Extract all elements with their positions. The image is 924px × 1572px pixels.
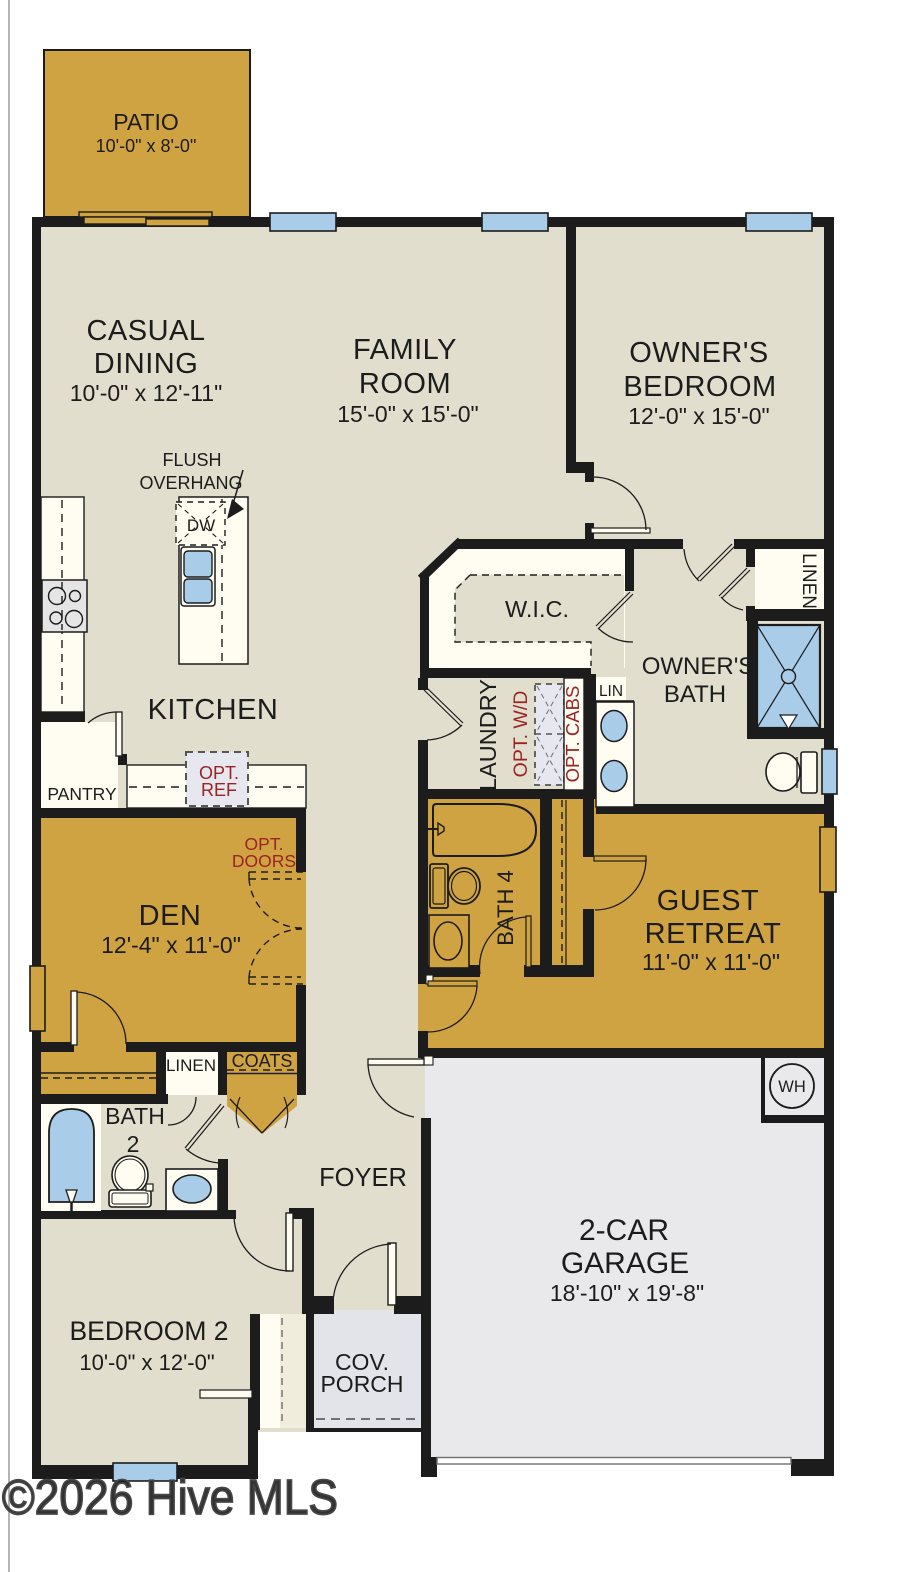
svg-text:FAMILY: FAMILY [353, 334, 457, 366]
svg-text:KITCHEN: KITCHEN [148, 694, 279, 726]
svg-text:10'-0" x 12'-11": 10'-0" x 12'-11" [70, 380, 223, 406]
svg-text:W.I.C.: W.I.C. [505, 596, 569, 622]
svg-text:2-CAR: 2-CAR [579, 1214, 669, 1247]
svg-text:11'-0" x 11'-0": 11'-0" x 11'-0" [642, 949, 780, 975]
svg-text:18'-10" x 19'-8": 18'-10" x 19'-8" [550, 1280, 704, 1306]
svg-text:BEDROOM: BEDROOM [623, 371, 776, 403]
svg-text:PORCH: PORCH [320, 1371, 403, 1397]
svg-text:CASUAL: CASUAL [86, 315, 205, 347]
svg-text:OWNER'S: OWNER'S [642, 653, 755, 680]
svg-text:OWNER'S: OWNER'S [629, 337, 769, 369]
svg-text:BEDROOM 2: BEDROOM 2 [69, 1316, 228, 1346]
svg-text:FOYER: FOYER [319, 1164, 407, 1192]
svg-text:OVERHANG: OVERHANG [139, 473, 242, 493]
svg-text:REF: REF [201, 780, 237, 800]
svg-text:OPT. CABS: OPT. CABS [562, 686, 583, 783]
svg-text:COATS: COATS [232, 1051, 293, 1071]
svg-text:15'-0" x 15'-0": 15'-0" x 15'-0" [337, 401, 478, 427]
svg-text:BATH: BATH [105, 1103, 165, 1129]
svg-text:10'-0" x 12'-0": 10'-0" x 12'-0" [79, 1350, 214, 1375]
svg-text:FLUSH: FLUSH [162, 450, 221, 470]
svg-text:LINEN: LINEN [798, 553, 819, 609]
svg-text:LINEN: LINEN [166, 1056, 216, 1075]
svg-text:12'-4" x 11'-0": 12'-4" x 11'-0" [101, 932, 241, 958]
svg-text:10'-0" x 8'-0": 10'-0" x 8'-0" [96, 136, 197, 156]
svg-text:BATH 4: BATH 4 [493, 870, 518, 945]
svg-text:2: 2 [127, 1131, 140, 1157]
svg-text:ROOM: ROOM [359, 368, 451, 400]
svg-text:LAUNDRY: LAUNDRY [475, 679, 501, 791]
svg-text:©2026 Hive MLS: ©2026 Hive MLS [2, 1471, 338, 1525]
svg-text:WH: WH [778, 1078, 806, 1096]
svg-text:DOORS: DOORS [232, 851, 296, 871]
svg-text:BATH: BATH [664, 681, 726, 708]
svg-text:PATIO: PATIO [113, 109, 179, 135]
svg-text:GARAGE: GARAGE [561, 1247, 689, 1280]
svg-text:RETREAT: RETREAT [645, 918, 782, 950]
svg-text:GUEST: GUEST [657, 885, 759, 917]
svg-text:PANTRY: PANTRY [47, 784, 117, 804]
svg-text:LIN: LIN [599, 683, 623, 700]
svg-text:DW: DW [187, 516, 215, 535]
svg-text:OPT. W/D: OPT. W/D [510, 691, 532, 778]
svg-text:DEN: DEN [139, 900, 202, 932]
svg-text:DINING: DINING [94, 348, 199, 380]
svg-text:12'-0" x 15'-0": 12'-0" x 15'-0" [628, 403, 769, 429]
